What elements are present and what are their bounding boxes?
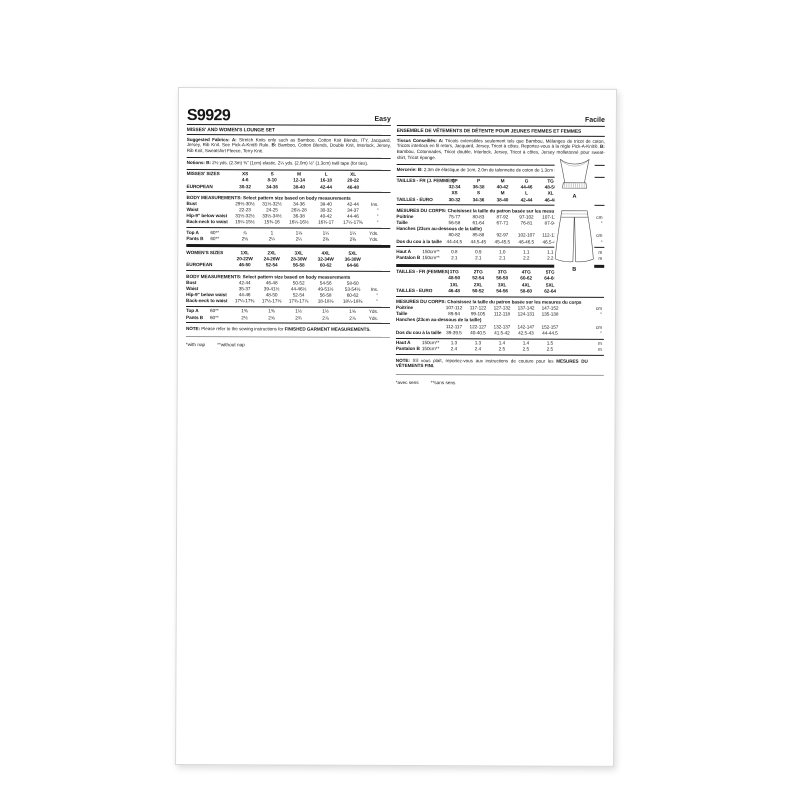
table-row: EUROPEAN46-5052-5456-5860-6264-66 [186, 262, 390, 269]
notions-label-en: Notions: B: [187, 160, 211, 165]
table-cell: 60** [210, 315, 231, 321]
misses-yardage-table-en: Top A60**⅞11⅛1¼1¼Yds.Pants B60**2⅛2¼2¼2⅜… [186, 229, 390, 243]
suggested-fabrics-en: Suggested Fabrics: A: Stretch Knits only… [187, 135, 391, 157]
footnote-with-nap: *with nap [186, 342, 205, 347]
table-cell: 62-64 [538, 288, 562, 294]
table-cell: 18¼-18⅜ [339, 299, 366, 305]
garment-views: A B [554, 156, 595, 281]
table-cell: 46-46.5 [514, 239, 538, 245]
table-cell: Back-neck to waist [186, 298, 231, 304]
table-cell: 15¾-16 [258, 220, 285, 226]
difficulty-label-en: Easy [374, 116, 390, 124]
table-cell: TAILLES - FR (FEMMES) [396, 269, 442, 275]
footnote-fr: *avec sens **sans sens [396, 380, 604, 386]
table-cell: 67-71 [490, 220, 514, 226]
table-cell: 54-56 [490, 288, 514, 294]
footnote-en: *with nap **without nap [186, 342, 390, 348]
table-cell: 112-118 [490, 312, 514, 318]
footnote-avec-sens: *avec sens [396, 380, 419, 385]
table-cell: EUROPEAN [187, 184, 232, 190]
womens-yardage-table-fr: Haut A150cm**1.31.31.41.41.5mPantalon B1… [396, 340, 604, 354]
table-cell: 2⅝ [258, 315, 285, 321]
fabrics-view-b-label-fr: B: [600, 144, 605, 149]
table-cell: 124-131 [514, 312, 538, 318]
table-cell: 60** [210, 236, 231, 242]
divider [186, 336, 390, 338]
garment-top-a-illustration [557, 156, 593, 192]
table-cell: " [562, 331, 604, 337]
table-cell: 30-32 [442, 197, 466, 203]
table-cell: Pants B [186, 315, 210, 321]
table-cell: 44-44.5 [538, 330, 562, 336]
table-cell: 60-62 [312, 263, 339, 269]
header-fr: Facile [397, 109, 605, 125]
table-cell: 34-36 [466, 197, 490, 203]
table-cell: TAILLES - EURO [396, 288, 442, 294]
table-cell: 17¾-17⅞ [285, 299, 312, 305]
notions-en: Notions: B: 2½ yds. (2.3m) ⅜" (1cm) elas… [187, 159, 391, 169]
table-cell: " [366, 220, 390, 226]
table-cell: 2.1 [466, 255, 490, 261]
table-cell: 16¼-16½ [285, 220, 312, 226]
table-cell: 2½ [231, 315, 258, 321]
table-cell: 41.5-42 [490, 330, 514, 336]
garment-pants-b-illustration [554, 208, 594, 265]
table-cell: 52-54 [258, 263, 285, 269]
misses-body-table-en: Bust29½-30½31½-32½34-3638-4042-44Ins.Wai… [186, 200, 390, 227]
view-b-label: B [554, 267, 594, 273]
notions-label-fr: Mercerie: B: [397, 167, 423, 172]
notions-text-en: 2½ yds. (2.3m) ⅜" (1cm) elastic, 2¼ yds.… [212, 160, 368, 166]
table-cell: 40-40.5 [466, 330, 490, 336]
table-cell: 39-39.5 [442, 330, 466, 336]
view-a-label: A [555, 194, 595, 200]
table-cell: 17½-17⅝ [258, 299, 285, 305]
table-cell: Yds. [366, 237, 390, 243]
header-en: S9929 Easy [187, 108, 391, 124]
table-cell: 16¾-17 [312, 220, 339, 226]
table-cell: MISSES' SIZES [187, 171, 232, 177]
pattern-number: S9929 [187, 108, 230, 123]
table-cell: 42.5-43 [514, 330, 538, 336]
table-cell: 17¼-17⅜ [231, 298, 258, 304]
table-cell: Pantalon B [396, 255, 422, 261]
note-emphasis-en: FINISHED GARMENT MEASUREMENTS. [285, 326, 371, 331]
womens-body-table-en: Bust42-4446-4850-5254-5658-60Waist35-373… [186, 279, 390, 306]
table-cell: 2.4 [466, 347, 490, 353]
table-cell: Dos du cou à la taille [396, 330, 442, 336]
pattern-envelope-back: S9929 Easy MISSES' AND WOMEN'S LOUNGE SE… [175, 87, 617, 767]
table-cell: 15¼-15½ [231, 220, 258, 226]
table-cell: 2⅜ [312, 236, 339, 242]
difficulty-label-fr: Facile [585, 117, 605, 125]
womens-yardage-table-en: Top A60**1⅜1⅜1½1½1⅝Yds.Pants B60**2½2⅝2¾… [186, 308, 390, 322]
table-cell: 38-40 [490, 197, 514, 203]
table-cell: 2¼ [258, 236, 285, 242]
womens-body-table-fr: Poitrine107-112117-122127-132137-142147-… [396, 305, 604, 338]
table-cell: 2⅛ [231, 236, 258, 242]
english-column: S9929 Easy MISSES' AND WOMEN'S LOUNGE SE… [186, 108, 397, 348]
table-cell: 42-44 [313, 184, 340, 190]
table-cell: 2.5 [538, 347, 562, 353]
table-cell: Pants B [186, 236, 210, 242]
table-row: Back-neck to waist17¼-17⅜17½-17⅝17¾-17⅞1… [186, 298, 390, 305]
table-cell: 2.1 [442, 255, 466, 261]
misses-sizes-table-en: MISSES' SIZESXSSMLXL4-68-1012-1416-1820-… [187, 171, 391, 191]
table-cell: 2¾ [285, 315, 312, 321]
printed-content: S9929 Easy MISSES' AND WOMEN'S LOUNGE SE… [186, 108, 605, 386]
table-cell: 2¼ [285, 236, 312, 242]
table-cell: 44.5-45 [466, 239, 490, 245]
table-cell: m [562, 347, 604, 353]
table-cell: 2.2 [514, 256, 538, 262]
table-cell: 45-45.5 [490, 239, 514, 245]
fabrics-label-en: Suggested Fabrics: A: [187, 137, 237, 142]
table-cell: 50-52 [466, 288, 490, 294]
table-row: Back-neck to waist15¼-15½15¾-1616¼-16½16… [186, 219, 390, 226]
table-cell: " [366, 299, 390, 305]
note-en: NOTE: Please refer to the sewing instruc… [186, 324, 390, 334]
table-cell: 44-44.5 [442, 239, 466, 245]
table-cell: 38-40 [286, 184, 313, 190]
table-cell: 2.4 [442, 346, 466, 352]
table-cell: TAILLES - FR (J. FEMMES) [397, 178, 443, 184]
table-cell: 30-32 [232, 184, 259, 190]
table-cell: Pantalon B [396, 346, 422, 352]
table-cell: 2⅞ [339, 315, 366, 321]
fabrics-label-fr: Tissus Conseillés: A: [397, 137, 444, 142]
table-cell: 17¼-17⅜ [339, 220, 366, 226]
womens-sizes-table-en: WOMEN'S SIZES1XL2XL3XL4XL5XL20-22W24-26W… [186, 249, 390, 269]
table-cell: 46-48 [442, 288, 466, 294]
table-cell: 2⅞ [312, 315, 339, 321]
table-cell: 150cm** [422, 255, 442, 261]
table-row: Pants B60**2⅛2¼2¼2⅜2⅜Yds. [186, 236, 390, 243]
table-cell: 34-36 [259, 184, 286, 190]
section-divider-bar [186, 244, 390, 248]
note-text-en: Please refer to the sewing instructions … [201, 326, 283, 331]
table-cell: 64-66 [339, 263, 366, 269]
note-label-fr: NOTE: [396, 357, 410, 362]
table-cell: 135-138 [538, 312, 562, 318]
footnote-sans-sens: **sans sens [431, 380, 456, 385]
table-cell: EUROPEAN [186, 262, 231, 268]
fabrics-view-b-label-en: B: [272, 143, 277, 148]
table-cell: Back-neck to waist [186, 219, 231, 225]
table-row: EUROPEAN30-3234-3638-4042-4446-48 [187, 184, 391, 191]
table-cell: 46-50 [231, 263, 258, 269]
footnote-without-nap: **without nap [217, 342, 245, 347]
table-cell: 2.1 [490, 255, 514, 261]
table-cell: 56-58 [285, 263, 312, 269]
table-row: Pants B60**2½2⅝2¾2⅞2⅞Yds. [186, 315, 390, 322]
divider [396, 374, 604, 376]
table-cell: TAILLES - EURO [396, 197, 442, 203]
table-cell: Yds. [366, 315, 390, 321]
table-cell: 58-60 [514, 288, 538, 294]
table-cell: 18-18⅛ [312, 299, 339, 305]
table-cell: 2⅜ [339, 236, 366, 242]
table-row: TAILLES - EURO46-4850-5254-5658-6062-64 [396, 288, 604, 295]
table-cell: 150cm** [422, 346, 442, 352]
table-row: Pantalon B150cm**2.42.42.52.52.5m [396, 346, 604, 353]
table-row: Dos du cou à la taille39-39.540-40.541.5… [396, 330, 604, 337]
table-cell: 76-81 [514, 221, 538, 227]
table-cell: WOMEN'S SIZES [186, 250, 231, 256]
table-cell: " [562, 312, 604, 318]
table-cell: 2.5 [514, 347, 538, 353]
table-cell: 42-44 [514, 197, 538, 203]
table-cell: 2.5 [490, 347, 514, 353]
table-cell: 46-48 [340, 184, 367, 190]
note-label-en: NOTE: [186, 326, 200, 331]
table-cell: Dos du cou à la taille [396, 239, 442, 245]
note-fr: NOTE: S'il vous plaît, reportez-vous aux… [396, 356, 604, 372]
